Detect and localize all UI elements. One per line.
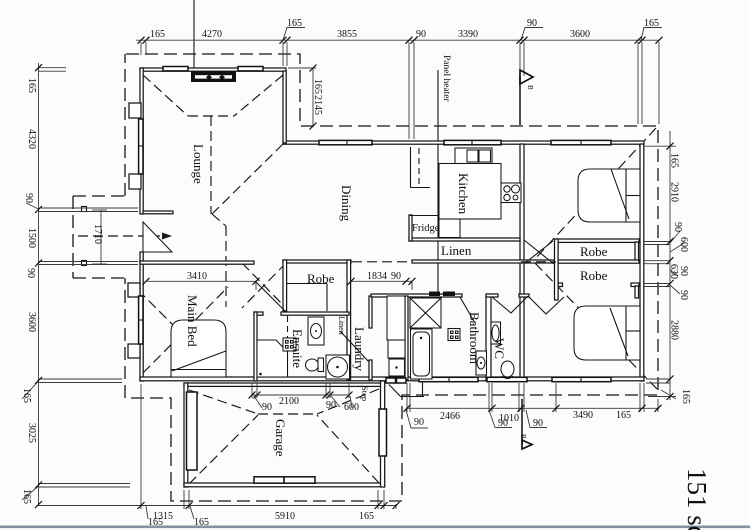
svg-text:90: 90 (678, 290, 689, 300)
svg-text:3025: 3025 (26, 423, 37, 443)
svg-text:90: 90 (25, 268, 36, 278)
svg-text:3600: 3600 (570, 29, 590, 40)
svg-text:3410: 3410 (187, 271, 207, 282)
svg-text:165: 165 (616, 410, 631, 421)
svg-text:90: 90 (262, 402, 272, 413)
svg-text:Garage: Garage (273, 419, 288, 457)
svg-text:Kitchen: Kitchen (456, 173, 471, 215)
svg-text:90: 90 (326, 400, 336, 411)
svg-text:90: 90 (23, 193, 34, 203)
svg-text:Linen: Linen (337, 316, 346, 335)
svg-text:Step: Step (360, 386, 370, 401)
svg-text:90: 90 (527, 18, 537, 29)
svg-text:165: 165 (312, 79, 323, 94)
svg-text:600: 600 (678, 237, 689, 252)
svg-text:5910: 5910 (275, 511, 295, 522)
svg-text:Lounge: Lounge (191, 144, 206, 184)
svg-text:2910: 2910 (669, 182, 680, 202)
svg-text:Laundry: Laundry (352, 327, 367, 372)
svg-text:90: 90 (498, 418, 508, 429)
svg-text:3600: 3600 (26, 312, 37, 332)
svg-text:1834: 1834 (367, 271, 387, 282)
svg-text:165: 165 (644, 18, 659, 29)
svg-text:90: 90 (391, 271, 401, 282)
svg-text:4270: 4270 (202, 29, 222, 40)
svg-text:Linen: Linen (441, 243, 472, 258)
svg-text:Main Bed: Main Bed (185, 295, 200, 347)
svg-text:Panel heater: Panel heater (441, 55, 451, 103)
svg-text:3855: 3855 (337, 29, 357, 40)
svg-text:2880: 2880 (669, 320, 680, 340)
svg-text:3390: 3390 (458, 29, 478, 40)
svg-text:4320: 4320 (26, 129, 37, 149)
svg-text:90: 90 (678, 266, 689, 276)
svg-text:B: B (519, 434, 527, 439)
svg-text:2466: 2466 (440, 411, 460, 422)
svg-text:165: 165 (680, 389, 691, 404)
svg-text:165: 165 (150, 29, 165, 40)
svg-text:165: 165 (359, 511, 374, 522)
svg-text:Robe: Robe (580, 244, 608, 259)
svg-text:1710: 1710 (92, 224, 103, 244)
svg-text:165: 165 (26, 78, 37, 93)
svg-text:Fridge: Fridge (412, 223, 440, 234)
svg-text:2145: 2145 (312, 95, 323, 115)
svg-text:165: 165 (287, 18, 302, 29)
svg-text:Robe: Robe (580, 268, 608, 283)
svg-text:Dining: Dining (339, 185, 354, 222)
svg-text:630: 630 (668, 264, 679, 279)
svg-text:165: 165 (669, 153, 680, 168)
svg-text:2100: 2100 (279, 396, 299, 407)
svg-text:Ensuite: Ensuite (290, 329, 305, 368)
svg-text:151 squ: 151 squ (682, 468, 712, 530)
svg-text:165: 165 (148, 517, 163, 528)
svg-text:1500: 1500 (26, 228, 37, 248)
svg-text:WC: WC (492, 338, 507, 359)
svg-text:90: 90 (672, 222, 683, 232)
svg-text:600: 600 (344, 402, 359, 413)
svg-text:165: 165 (194, 517, 209, 528)
svg-text:165: 165 (21, 388, 32, 403)
svg-text:90: 90 (533, 418, 543, 429)
svg-text:Robe: Robe (307, 271, 335, 286)
svg-text:B: B (526, 85, 534, 90)
svg-text:90: 90 (416, 29, 426, 40)
svg-text:165: 165 (21, 489, 32, 504)
svg-text:3490: 3490 (573, 410, 593, 421)
svg-text:90: 90 (414, 417, 424, 428)
svg-text:Bathroom: Bathroom (467, 312, 482, 364)
